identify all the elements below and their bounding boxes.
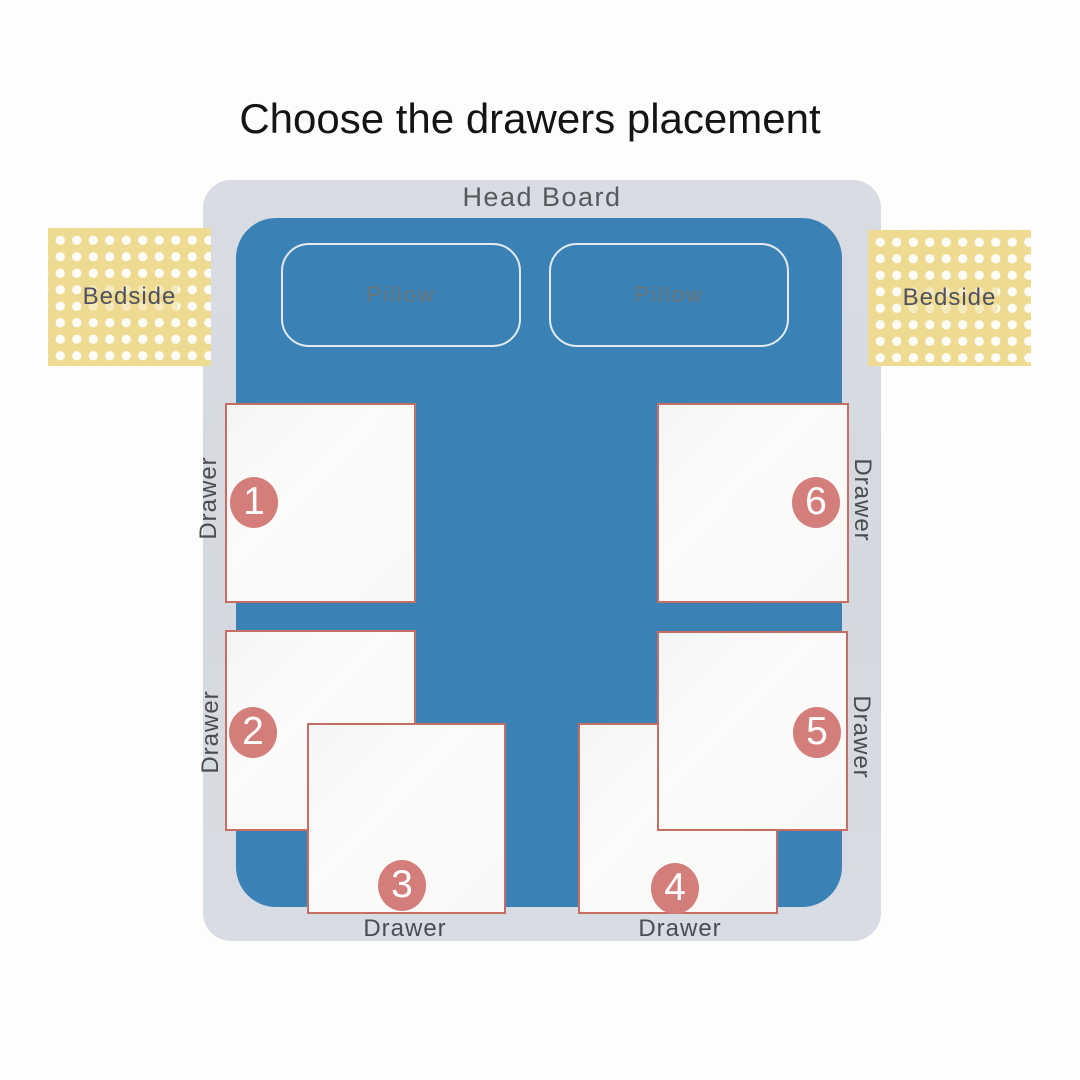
drawer-1-label: Drawer bbox=[195, 456, 223, 539]
bedside-left-label: Bedside bbox=[81, 283, 179, 311]
pillow-left: Pillow bbox=[281, 243, 521, 347]
drawer-5-label: Drawer bbox=[847, 695, 875, 778]
pillow-right: Pillow bbox=[549, 243, 789, 347]
bedside-left: Bedside bbox=[48, 228, 211, 366]
drawer-2-label: Drawer bbox=[197, 690, 225, 773]
drawer-6-number-badge: 6 bbox=[792, 477, 840, 528]
drawer-1-number-badge: 1 bbox=[230, 477, 278, 528]
drawer-placement-diagram: Choose the drawers placement Head Board … bbox=[0, 0, 1080, 1080]
drawer-6-label: Drawer bbox=[848, 458, 876, 541]
drawer-2-number-badge: 2 bbox=[229, 707, 277, 758]
headboard-label: Head Board bbox=[203, 182, 881, 213]
bedside-right: Bedside bbox=[868, 230, 1031, 366]
drawer-3-number-badge: 3 bbox=[378, 860, 426, 911]
drawer-5-number-badge: 5 bbox=[793, 707, 841, 758]
drawer-4-label: Drawer bbox=[638, 915, 721, 943]
page-title: Choose the drawers placement bbox=[0, 95, 1060, 143]
drawer-4-number-badge: 4 bbox=[651, 863, 699, 914]
drawer-3-label: Drawer bbox=[363, 915, 446, 943]
pillow-right-label: Pillow bbox=[634, 282, 703, 308]
bedside-right-label: Bedside bbox=[901, 284, 999, 312]
pillow-left-label: Pillow bbox=[366, 282, 435, 308]
